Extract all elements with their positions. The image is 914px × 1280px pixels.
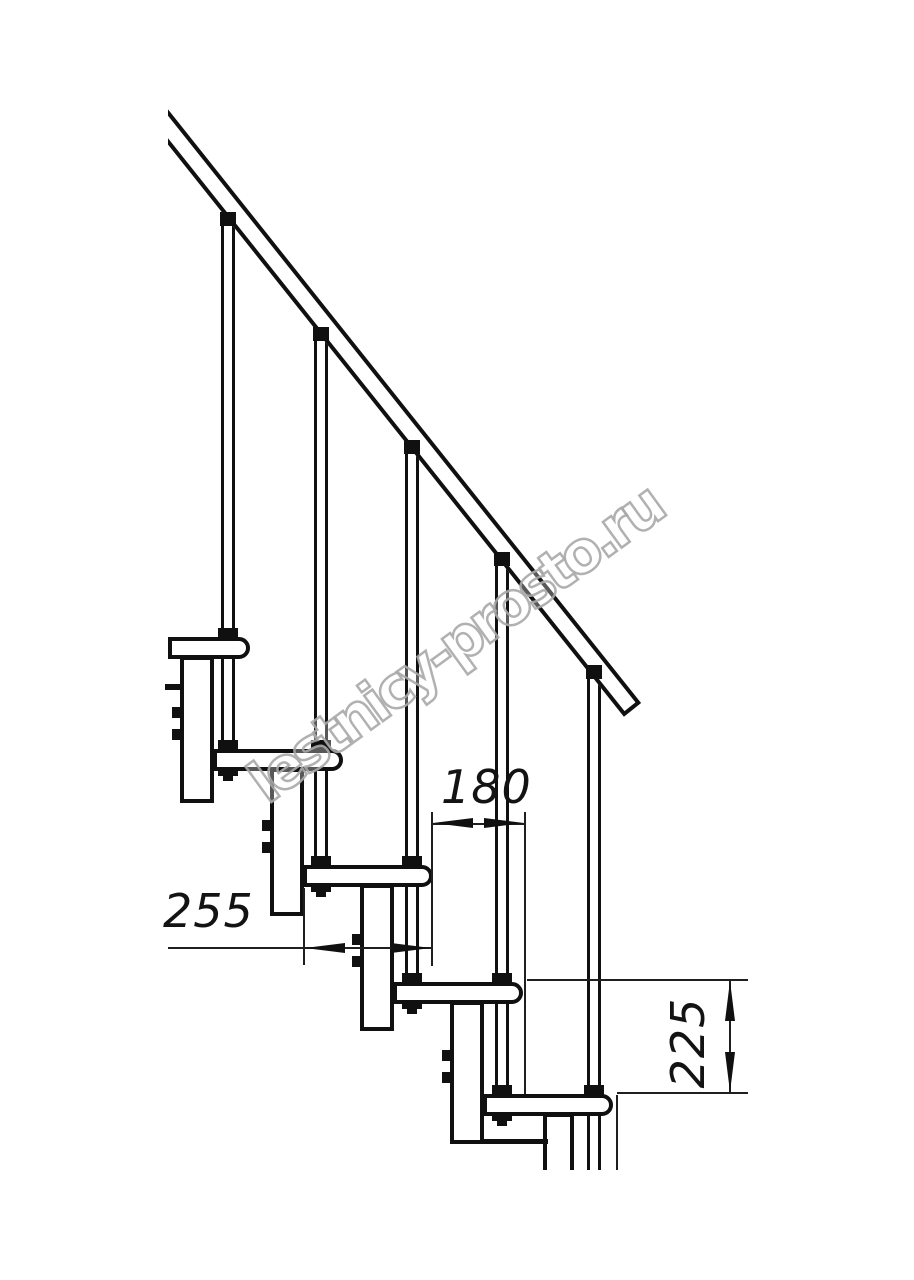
arrowhead-left-icon — [433, 818, 473, 828]
column-4-foot-line — [483, 1139, 548, 1144]
projection-line — [616, 1095, 618, 1170]
rod-nut — [311, 885, 331, 892]
bracket-flange — [165, 684, 182, 690]
bolt — [172, 707, 182, 718]
baluster-rod-1 — [221, 222, 235, 770]
arrowhead-down-icon — [725, 1052, 735, 1092]
tread-5 — [483, 1094, 613, 1116]
rail-collar-3 — [404, 440, 420, 454]
rod-collar — [311, 856, 331, 866]
bolt — [352, 956, 362, 967]
tread-3 — [303, 865, 433, 887]
rail-collar-5 — [586, 665, 602, 679]
arrowhead-left-icon — [305, 943, 345, 953]
rod-collar — [402, 973, 422, 983]
rod-collar — [218, 628, 238, 638]
support-column-4 — [450, 1001, 484, 1144]
rod-nut-stem — [497, 1121, 507, 1126]
dimension-label-225: 225 — [661, 983, 715, 1103]
rod-collar — [492, 1085, 512, 1095]
rod-nut — [402, 1002, 422, 1009]
tread-4 — [393, 982, 523, 1004]
rod-nut-stem — [407, 1009, 417, 1014]
rod-collar — [584, 1085, 604, 1095]
bolt — [352, 934, 362, 945]
bolt — [172, 729, 182, 740]
arrowhead-up-icon — [725, 981, 735, 1021]
rod-collar — [402, 856, 422, 866]
drawing-crop-cover — [0, 0, 168, 260]
support-column-3 — [360, 884, 394, 1031]
extension-line — [524, 812, 526, 1094]
bolt — [442, 1072, 452, 1083]
rod-nut-stem — [316, 892, 326, 897]
bolt — [442, 1050, 452, 1061]
rod-nut — [492, 1114, 512, 1121]
arrowhead-right-icon — [484, 818, 524, 828]
dimension-label-180: 180 — [441, 760, 532, 814]
extension-line — [303, 888, 305, 965]
rod-collar — [492, 973, 512, 983]
dimension-label-255: 255 — [163, 884, 254, 938]
stair-technical-drawing: 255 180 225 lestnicy-prosto.ru — [0, 0, 914, 1280]
extension-line — [527, 979, 748, 981]
extension-line — [431, 812, 433, 966]
tread-1 — [168, 637, 250, 659]
arrowhead-right-icon — [391, 943, 431, 953]
rail-collar-1 — [220, 212, 236, 226]
rail-collar-2 — [313, 327, 329, 341]
